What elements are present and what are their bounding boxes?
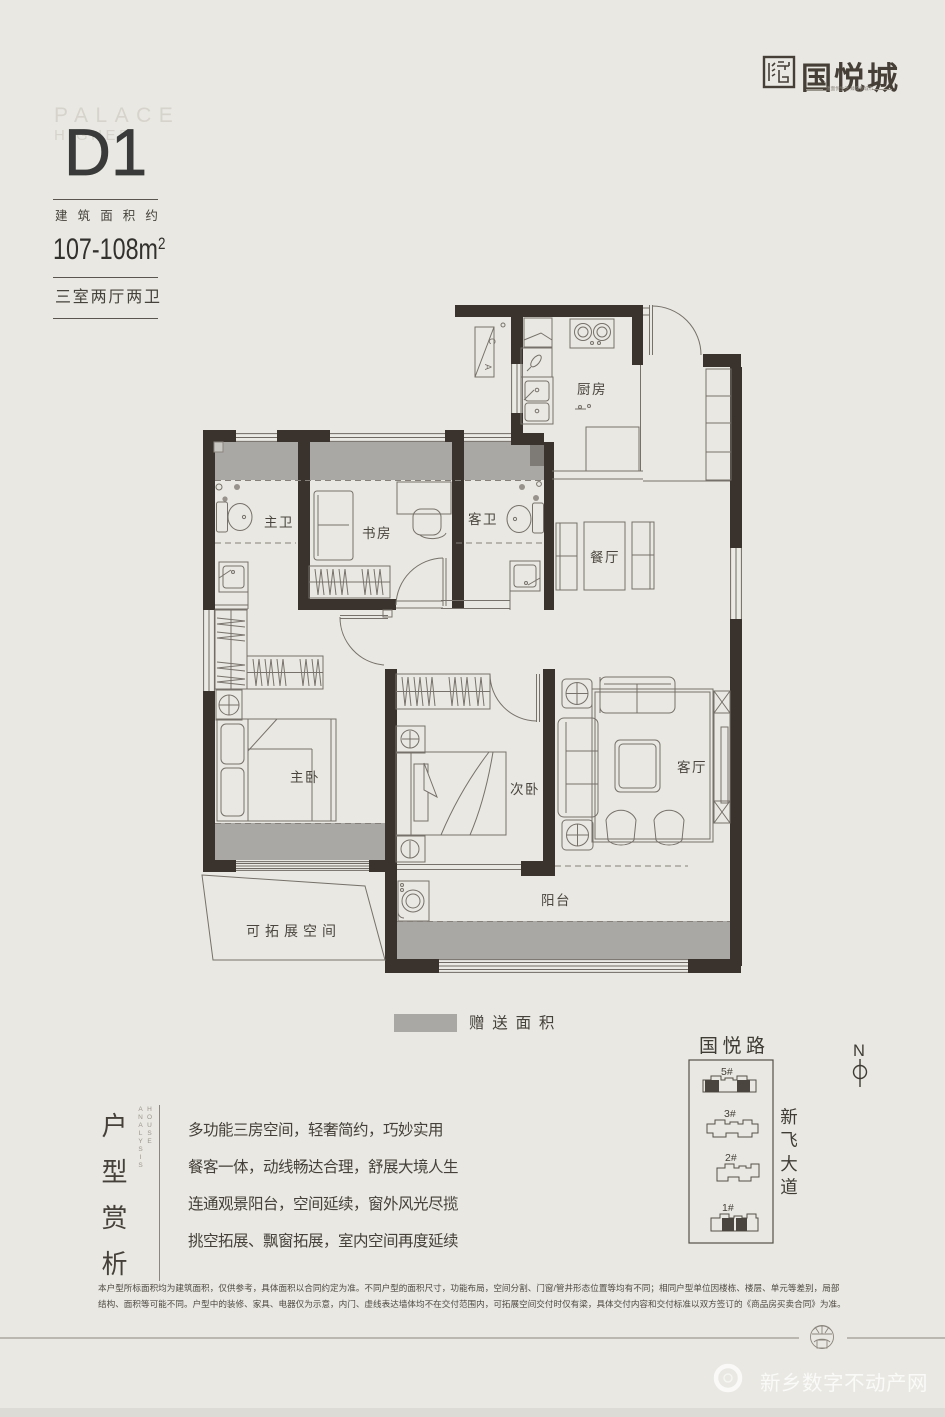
svg-text:A: A xyxy=(483,364,493,370)
svg-text:主卫: 主卫 xyxy=(264,515,294,530)
svg-text:厨房: 厨房 xyxy=(577,382,607,397)
svg-text:客卫: 客卫 xyxy=(468,511,498,527)
svg-text:N: N xyxy=(853,1042,865,1060)
svg-text:2#: 2# xyxy=(725,1152,737,1164)
svg-text:1#: 1# xyxy=(722,1202,734,1214)
svg-text:主卧: 主卧 xyxy=(290,770,320,785)
svg-text:3#: 3# xyxy=(724,1108,736,1120)
svg-text:阳台: 阳台 xyxy=(541,893,571,908)
svg-text:5#: 5# xyxy=(721,1066,733,1078)
svg-text:餐厅: 餐厅 xyxy=(590,550,620,565)
svg-text:C: C xyxy=(487,338,497,345)
svg-text:可拓展空间: 可拓展空间 xyxy=(246,923,341,939)
svg-text:次卧: 次卧 xyxy=(510,782,540,797)
svg-text:客厅: 客厅 xyxy=(677,759,707,775)
svg-text:书房: 书房 xyxy=(362,526,392,541)
